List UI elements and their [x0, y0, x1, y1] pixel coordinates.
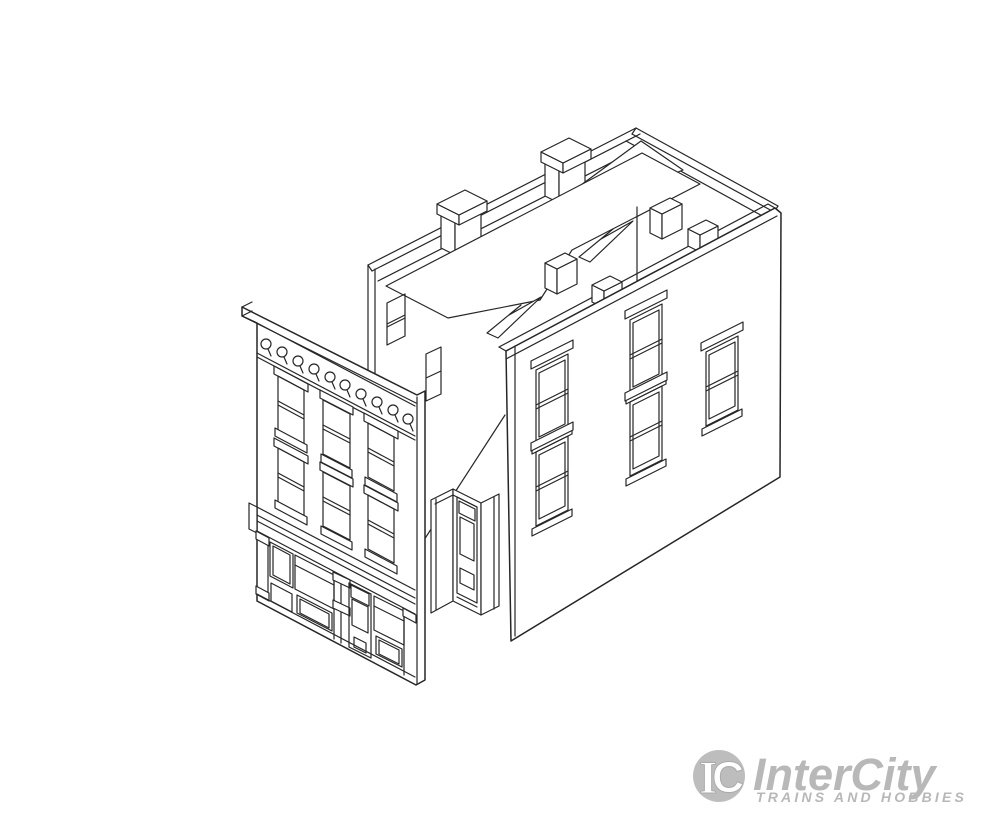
- intercity-logo: C I InterCity TRAINS AND HOBBIES: [693, 749, 967, 805]
- logo-monogram-i: I: [699, 752, 717, 804]
- facade-wall: [242, 302, 425, 685]
- logo-tagline: TRAINS AND HOBBIES: [756, 789, 967, 805]
- west-corner-post: [368, 265, 375, 378]
- screenshot-canvas: C I InterCity TRAINS AND HOBBIES: [0, 0, 1000, 833]
- door-unit: [431, 489, 499, 615]
- side-wall-window: [387, 294, 405, 345]
- assembly-diagram: C I InterCity TRAINS AND HOBBIES: [0, 0, 1000, 833]
- side-wall-window: [426, 347, 441, 401]
